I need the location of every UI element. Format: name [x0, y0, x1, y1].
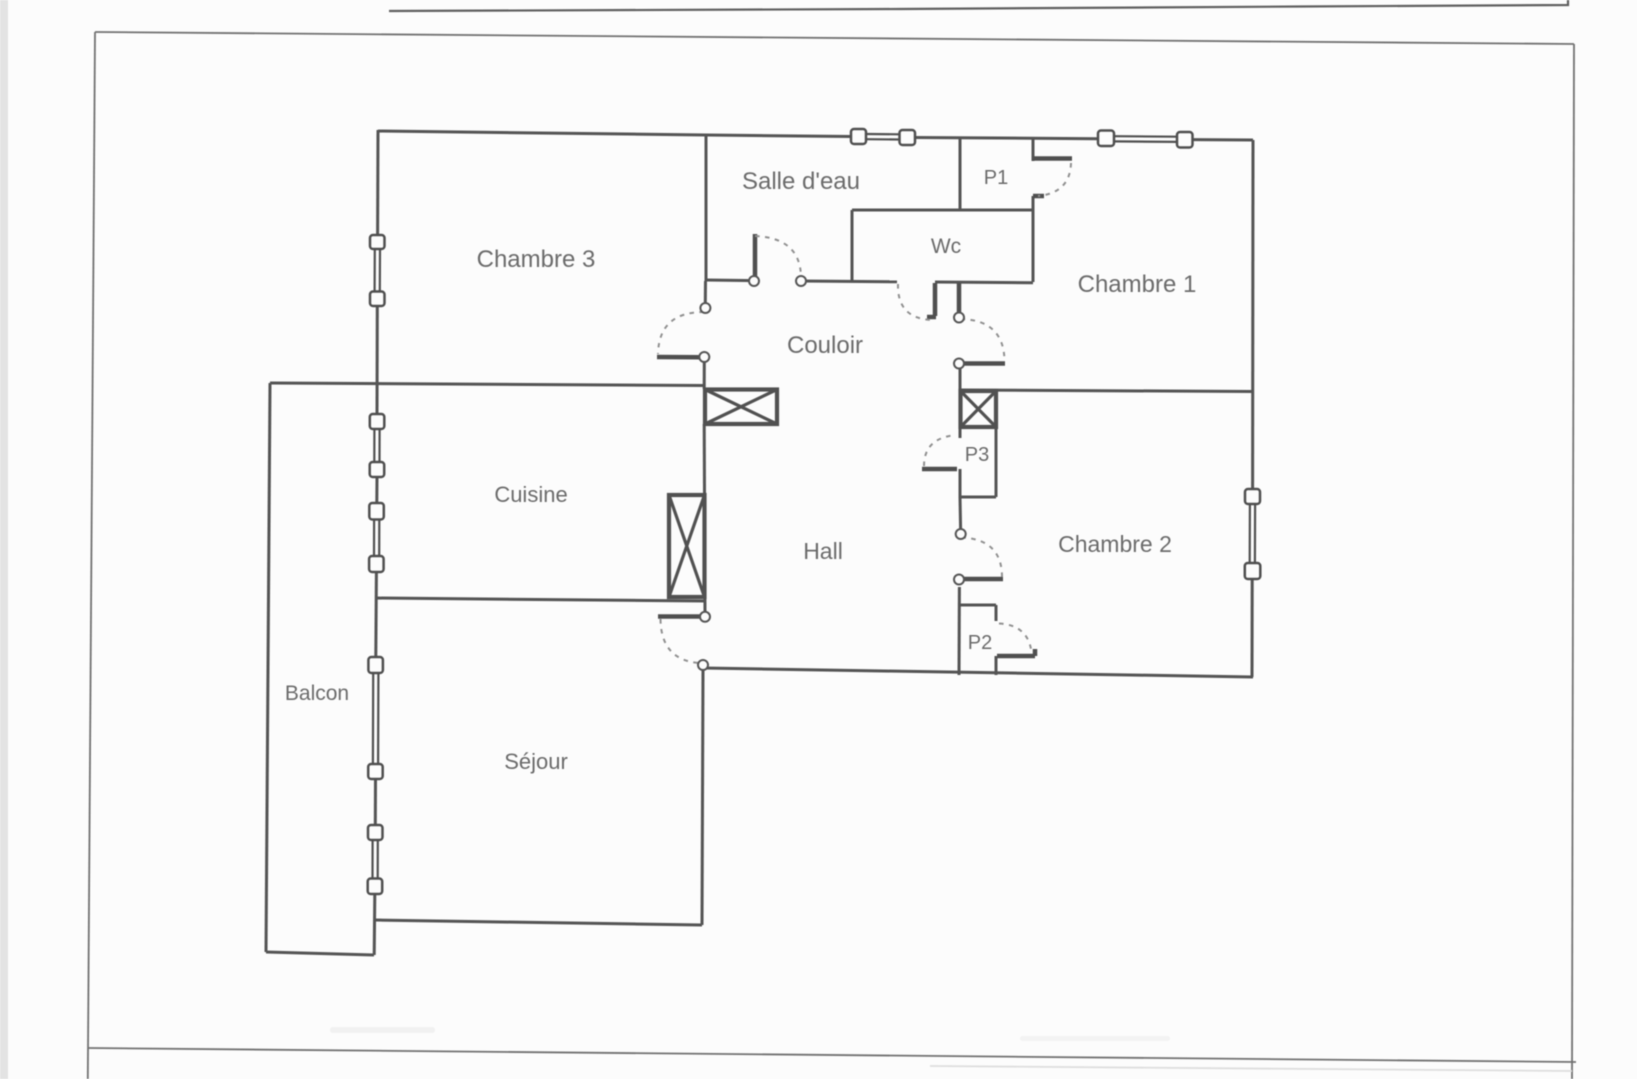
svg-text:Chambre 2: Chambre 2: [1058, 531, 1172, 557]
svg-text:Hall: Hall: [803, 538, 843, 564]
svg-text:Séjour: Séjour: [504, 749, 568, 774]
svg-text:Cuisine: Cuisine: [494, 482, 567, 507]
svg-text:Balcon: Balcon: [285, 682, 349, 705]
svg-text:P1: P1: [984, 167, 1008, 189]
svg-text:P2: P2: [968, 632, 992, 654]
svg-text:Chambre 1: Chambre 1: [1078, 271, 1197, 298]
svg-text:Salle d'eau: Salle d'eau: [742, 168, 860, 195]
svg-text:P3: P3: [965, 444, 989, 466]
svg-text:Couloir: Couloir: [787, 332, 863, 359]
svg-text:Chambre 3: Chambre 3: [477, 246, 596, 273]
svg-text:Wc: Wc: [931, 235, 961, 258]
